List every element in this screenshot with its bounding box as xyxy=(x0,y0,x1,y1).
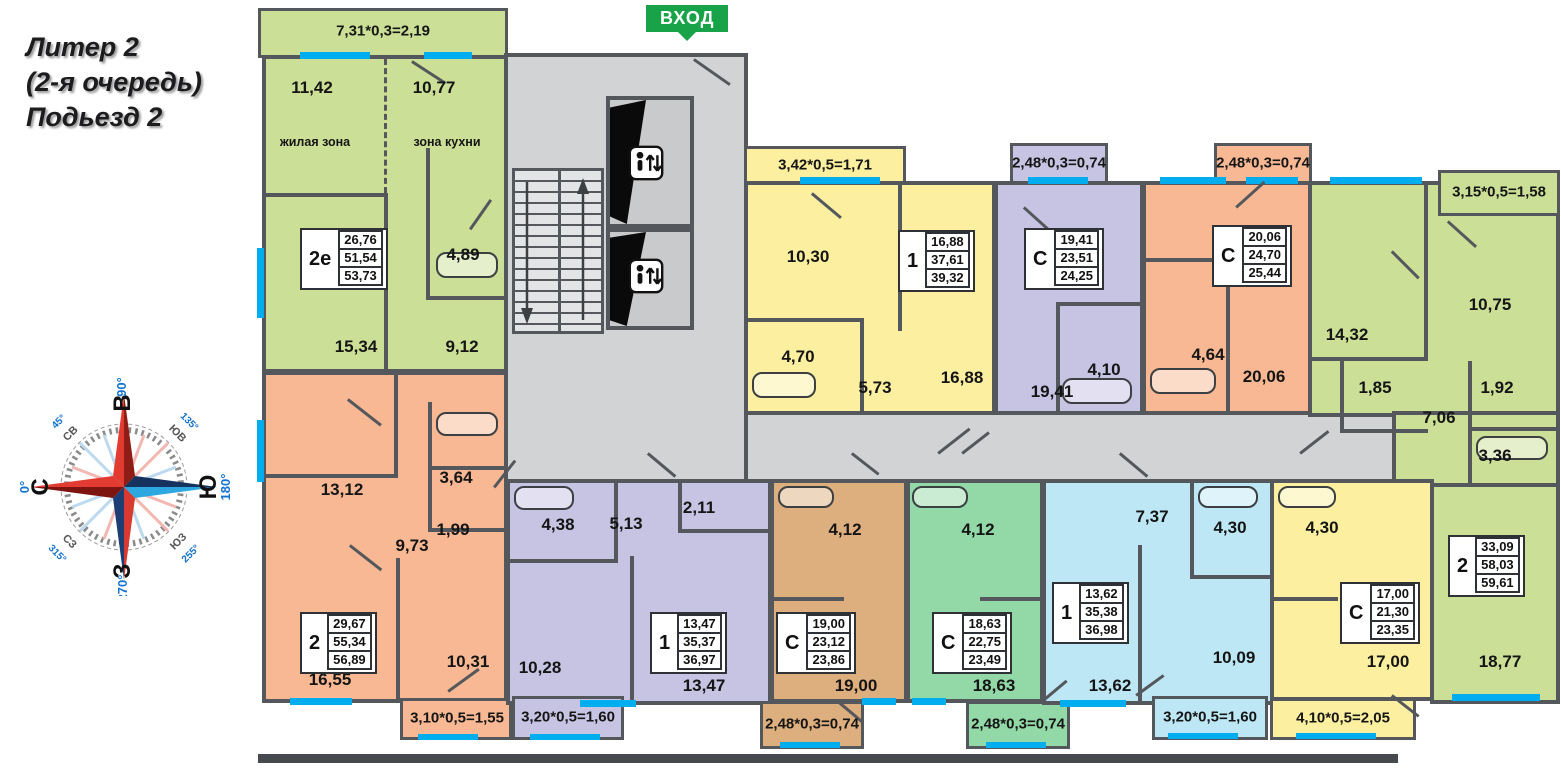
room-area-label: 9,73 xyxy=(395,536,428,556)
room-area-label: 13,62 xyxy=(1089,676,1132,696)
bathtub-icon xyxy=(912,486,968,508)
balcony-area-label: 3,15*0,5=1,58 xyxy=(1452,184,1546,201)
apartment-type: С xyxy=(1217,245,1239,268)
living-area: 19,00 xyxy=(806,614,851,634)
interior-wall xyxy=(1190,483,1194,579)
interior-wall xyxy=(510,559,618,563)
apartment-type: С xyxy=(781,632,803,655)
apartment-2-green-right-top[interactable] xyxy=(1308,181,1560,417)
area-no-balcony: 55,34 xyxy=(327,632,372,652)
living-area: 20,06 xyxy=(1242,227,1287,247)
total-area: 36,97 xyxy=(677,650,722,670)
total-area: 23,49 xyxy=(962,650,1007,670)
interior-wall xyxy=(396,558,400,703)
room-area-label: 11,42 xyxy=(291,78,333,98)
bathtub-icon xyxy=(778,486,834,508)
bathtub-icon xyxy=(1198,486,1258,508)
room-area-label: 10,09 xyxy=(1213,648,1256,668)
room-area-label: 4,30 xyxy=(1213,518,1246,538)
window xyxy=(780,742,840,748)
total-area: 36,98 xyxy=(1079,620,1124,640)
balcony-area-label: 2,48*0,3=0,74 xyxy=(1216,155,1310,172)
total-area: 53,73 xyxy=(338,266,383,286)
interior-wall xyxy=(266,474,398,478)
interior-wall xyxy=(748,318,864,322)
bathtub-icon xyxy=(1150,368,1216,394)
living-area: 13,47 xyxy=(677,614,722,634)
room-area-label: 3,36 xyxy=(1478,446,1511,466)
total-area: 59,61 xyxy=(1475,573,1520,593)
apartment-info-box: 1 13,47 35,37 36,97 xyxy=(650,612,727,674)
apartment-info-box: 2 29,67 55,34 56,89 xyxy=(300,612,377,674)
apartment-info-box: С 18,63 22,75 23,49 xyxy=(932,612,1012,674)
room-area-label: 10,31 xyxy=(447,652,490,672)
window xyxy=(1330,177,1422,184)
room-area-label: 4,38 xyxy=(541,515,574,535)
room-area-label: 4,89 xyxy=(446,245,479,265)
compass-ne-label: СВ xyxy=(61,424,81,444)
balcony-area-label: 4,10*0,5=2,05 xyxy=(1296,710,1390,727)
compass-ne-deg: 45° xyxy=(50,413,68,431)
room-area-label: 3,64 xyxy=(439,468,472,488)
apartment-info-box: 1 16,88 37,61 39,32 xyxy=(898,230,975,292)
corridor-junction xyxy=(510,417,742,477)
window xyxy=(1296,733,1376,739)
interior-wall xyxy=(266,193,386,197)
window xyxy=(580,700,636,707)
window xyxy=(530,734,600,740)
balcony-area-label: 2,48*0,3=0,74 xyxy=(765,716,859,733)
window xyxy=(300,52,370,59)
zone-label: зона кухни xyxy=(413,135,480,149)
interior-wall xyxy=(426,296,506,300)
room-area-label: 14,32 xyxy=(1326,325,1369,345)
room-area-label: 9,12 xyxy=(445,337,478,357)
area-no-balcony: 35,37 xyxy=(677,632,722,652)
apartment-type: 2 xyxy=(305,632,324,655)
interior-wall xyxy=(1056,302,1142,306)
room-area-label: 4,30 xyxy=(1305,518,1338,538)
window xyxy=(862,698,896,705)
room-area-label: 2,11 xyxy=(683,498,715,518)
apartment-info-box: С 19,00 23,12 23,86 xyxy=(776,612,856,674)
living-area: 19,41 xyxy=(1054,230,1099,250)
area-no-balcony: 21,30 xyxy=(1370,602,1415,622)
window xyxy=(912,698,946,705)
living-area: 13,62 xyxy=(1079,584,1124,604)
living-area: 29,67 xyxy=(327,614,372,634)
compass-north-deg: 0° xyxy=(17,481,32,493)
total-area: 56,89 xyxy=(327,650,372,670)
room-area-label: 7,06 xyxy=(1422,408,1455,428)
compass-west-deg: 270° xyxy=(115,575,130,596)
interior-wall xyxy=(1468,361,1472,483)
apartment-type: С xyxy=(937,632,959,655)
balcony-area-label: 3,10*0,5=1,55 xyxy=(410,710,504,727)
compass-nw-deg: 315° xyxy=(46,543,68,565)
apartment-type: 1 xyxy=(903,250,922,273)
window xyxy=(257,420,264,482)
room-area-label: 10,30 xyxy=(787,247,830,267)
area-no-balcony: 22,75 xyxy=(962,632,1007,652)
area-no-balcony: 23,51 xyxy=(1054,248,1099,268)
balcony-area-label: 3,42*0,5=1,71 xyxy=(778,157,872,174)
balcony-area-label: 2,48*0,3=0,74 xyxy=(971,716,1065,733)
room-area-label: 4,10 xyxy=(1087,360,1120,380)
room-area-label: 4,70 xyxy=(781,347,814,367)
window xyxy=(1168,733,1238,739)
interior-wall xyxy=(678,529,772,533)
apartment-type: 1 xyxy=(1057,602,1076,625)
title-line-3: Подьезд 2 xyxy=(26,100,202,135)
living-area: 26,76 xyxy=(338,230,383,250)
interior-wall xyxy=(980,597,1040,601)
room-area-label: 17,00 xyxy=(1367,652,1410,672)
window xyxy=(290,698,352,705)
room-area-label: 4,64 xyxy=(1191,345,1224,365)
compass-sw-label: ЮЗ xyxy=(168,531,189,552)
bathtub-icon xyxy=(1278,486,1336,508)
apartment-info-box: С 17,00 21,30 23,35 xyxy=(1340,582,1420,644)
living-area: 17,00 xyxy=(1370,584,1415,604)
living-area: 16,88 xyxy=(925,232,970,252)
compass-rose: В 90° Ю 180° С 0° З 270° СВ 45° ЮВ 135° … xyxy=(15,378,233,596)
interior-wall xyxy=(1190,575,1272,579)
room-area-label: 13,12 xyxy=(321,480,364,500)
apartment-type: 2 xyxy=(1453,555,1472,578)
compass-se-label: ЮВ xyxy=(166,423,188,445)
interior-wall xyxy=(426,148,430,300)
zone-divider xyxy=(384,59,387,193)
bathtub-icon xyxy=(752,372,816,398)
interior-wall xyxy=(774,597,844,601)
window xyxy=(1028,177,1088,184)
balcony-area-label: 2,48*0,3=0,74 xyxy=(1012,155,1106,172)
area-no-balcony: 35,38 xyxy=(1079,602,1124,622)
title-line-1: Литер 2 xyxy=(26,30,202,65)
area-no-balcony: 23,12 xyxy=(806,632,851,652)
window xyxy=(424,52,472,59)
room-area-label: 19,00 xyxy=(835,676,878,696)
balcony-area-label: 3,20*0,5=1,60 xyxy=(521,709,615,726)
elevator-icon xyxy=(628,258,664,294)
room-area-label: 18,63 xyxy=(973,676,1016,696)
compass-east-deg: 90° xyxy=(114,378,129,397)
apartment-info-box: С 20,06 24,70 25,44 xyxy=(1212,225,1292,287)
interior-wall xyxy=(1468,427,1560,431)
room-area-label: 1,85 xyxy=(1358,378,1391,398)
apartment-info-box: 2 33,09 58,03 59,61 xyxy=(1448,535,1525,597)
window xyxy=(257,248,264,318)
room-area-label: 7,37 xyxy=(1135,507,1168,527)
window xyxy=(418,734,478,740)
room-area-label: 5,73 xyxy=(858,378,891,398)
title-line-2: (2-я очередь) xyxy=(26,65,202,100)
apartment-info-box: С 19,41 23,51 24,25 xyxy=(1024,228,1104,290)
interior-wall xyxy=(1340,429,1428,433)
apartment-type: 2е xyxy=(305,248,335,271)
room-area-label: 10,75 xyxy=(1469,295,1512,315)
window xyxy=(1160,177,1226,184)
area-no-balcony: 58,03 xyxy=(1475,555,1520,575)
total-area: 23,86 xyxy=(806,650,851,670)
room-area-label: 15,34 xyxy=(335,337,378,357)
total-area: 23,35 xyxy=(1370,620,1415,640)
room-area-label: 16,88 xyxy=(941,368,984,388)
room-area-label: 10,77 xyxy=(413,78,456,98)
bathtub-icon xyxy=(436,412,498,436)
window xyxy=(1060,700,1126,707)
ground-line xyxy=(258,754,1398,763)
bathtub-icon xyxy=(514,486,574,510)
compass-south-deg: 180° xyxy=(218,474,233,501)
area-no-balcony: 37,61 xyxy=(925,250,970,270)
room-area-label: 18,77 xyxy=(1479,652,1522,672)
plan-title: Литер 2 (2-я очередь) Подьезд 2 xyxy=(26,30,202,135)
interior-wall xyxy=(1340,361,1344,433)
room-area-label: 20,06 xyxy=(1243,367,1286,387)
total-area: 24,25 xyxy=(1054,266,1099,286)
room-area-label: 10,28 xyxy=(519,658,562,678)
living-area: 33,09 xyxy=(1475,537,1520,557)
stairs-down-arrow-icon xyxy=(520,176,534,326)
interior-wall xyxy=(1138,545,1142,705)
living-area: 18,63 xyxy=(962,614,1007,634)
apartment-info-box: 2е 26,76 51,54 53,73 xyxy=(300,228,388,290)
room-area-label: 19,41 xyxy=(1031,382,1074,402)
interior-wall xyxy=(1312,357,1428,361)
stairs-up-arrow-icon xyxy=(576,176,590,326)
room-area-label: 5,13 xyxy=(609,514,642,534)
apartment-type: 1 xyxy=(655,632,674,655)
apartment-type: С xyxy=(1345,602,1367,625)
floor-plan: Литер 2 (2-я очередь) Подьезд 2 В 90° Ю … xyxy=(0,0,1561,768)
window xyxy=(986,742,1046,748)
room-area-label: 13,47 xyxy=(683,676,726,696)
window xyxy=(1452,694,1540,701)
interior-wall xyxy=(1274,597,1338,601)
interior-wall xyxy=(630,556,634,705)
interior-wall xyxy=(678,483,682,533)
total-area: 25,44 xyxy=(1242,263,1287,283)
apartment-type: С xyxy=(1029,248,1051,271)
area-no-balcony: 51,54 xyxy=(338,248,383,268)
interior-wall xyxy=(394,375,398,478)
entrance-label: ВХОД xyxy=(660,8,714,28)
total-area: 39,32 xyxy=(925,268,970,288)
balcony-area-label: 3,20*0,5=1,60 xyxy=(1163,709,1257,726)
window xyxy=(1246,177,1298,184)
apartment-info-box: 1 13,62 35,38 36,98 xyxy=(1052,582,1129,644)
compass-nw-label: СЗ xyxy=(60,532,79,551)
compass-sw-deg: 255° xyxy=(180,543,202,565)
room-area-label: 4,12 xyxy=(828,520,861,540)
balcony-area-label: 7,31*0,3=2,19 xyxy=(336,23,430,40)
room-area-label: 1,99 xyxy=(436,520,469,540)
room-area-label: 1,92 xyxy=(1480,378,1513,398)
zone-label: жилая зона xyxy=(280,135,350,149)
area-no-balcony: 24,70 xyxy=(1242,245,1287,265)
room-area-label: 4,12 xyxy=(961,520,994,540)
entrance-badge: ВХОД xyxy=(646,5,728,32)
window xyxy=(800,177,880,184)
elevator-icon xyxy=(628,145,664,181)
interior-wall xyxy=(1424,185,1428,361)
